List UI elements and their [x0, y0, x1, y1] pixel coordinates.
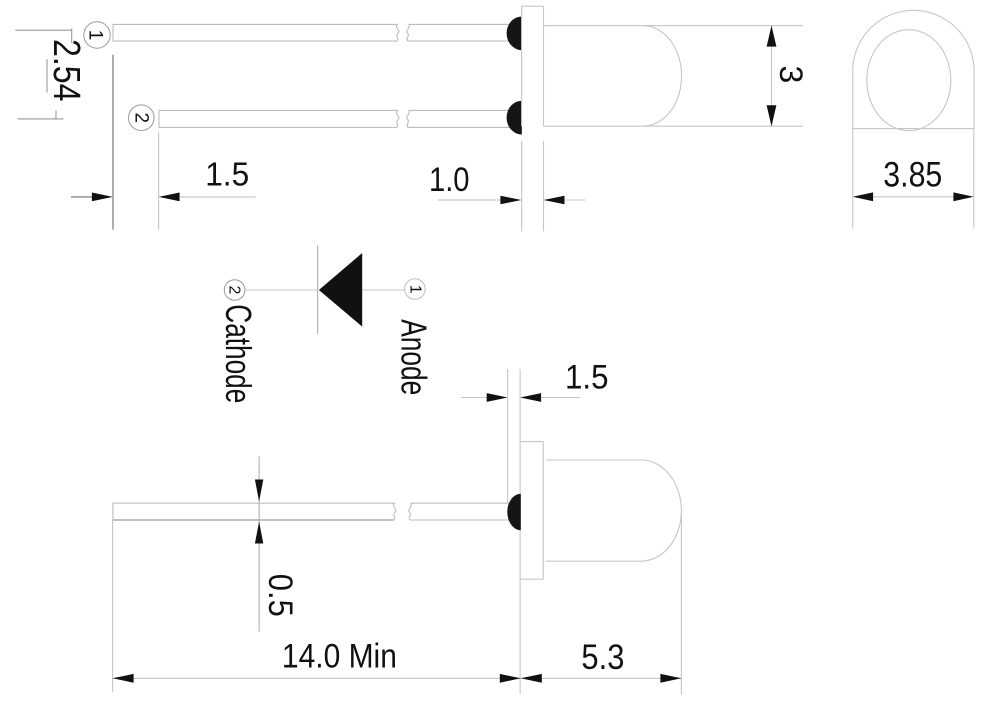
svg-text:2: 2	[226, 286, 243, 295]
svg-text:5.3: 5.3	[581, 638, 624, 677]
svg-text:2.54: 2.54	[45, 39, 87, 102]
svg-text:0.5: 0.5	[261, 574, 299, 617]
svg-text:3.85: 3.85	[883, 155, 942, 194]
svg-text:1: 1	[407, 285, 424, 294]
svg-text:1.0: 1.0	[429, 161, 470, 199]
svg-text:1.5: 1.5	[205, 155, 249, 192]
svg-text:3: 3	[773, 66, 809, 84]
svg-text:14.0 Min: 14.0 Min	[282, 637, 397, 675]
svg-text:1.5: 1.5	[565, 359, 609, 397]
svg-text:Anode: Anode	[394, 319, 435, 395]
svg-text:Cathode: Cathode	[218, 304, 259, 403]
svg-text:2: 2	[131, 113, 152, 124]
